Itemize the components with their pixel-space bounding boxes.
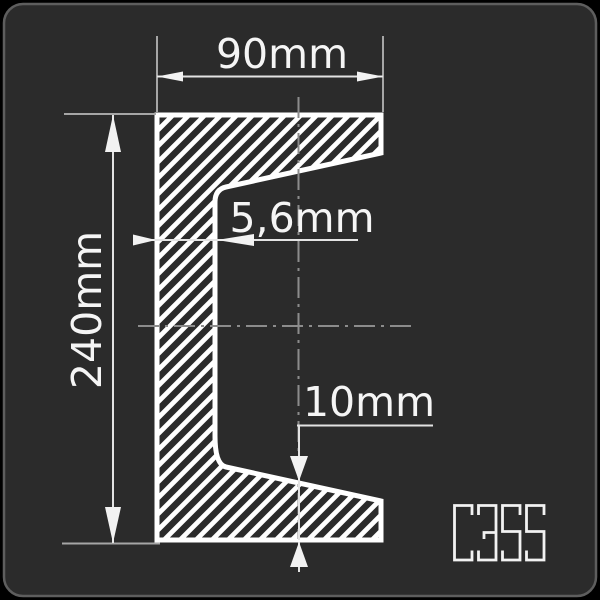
- channel-profile-drawing: 90mm 240mm 5,6mm 10mm C355: [0, 0, 600, 600]
- steel-grade-text: C355: [431, 502, 566, 567]
- web-thickness-label: 5,6mm: [229, 194, 374, 242]
- height-dimension-label: 240mm: [63, 231, 111, 389]
- flange-thickness-label: 10mm: [303, 378, 435, 426]
- width-dimension-label: 90mm: [216, 30, 348, 78]
- steel-grade-label: C355: [431, 502, 566, 567]
